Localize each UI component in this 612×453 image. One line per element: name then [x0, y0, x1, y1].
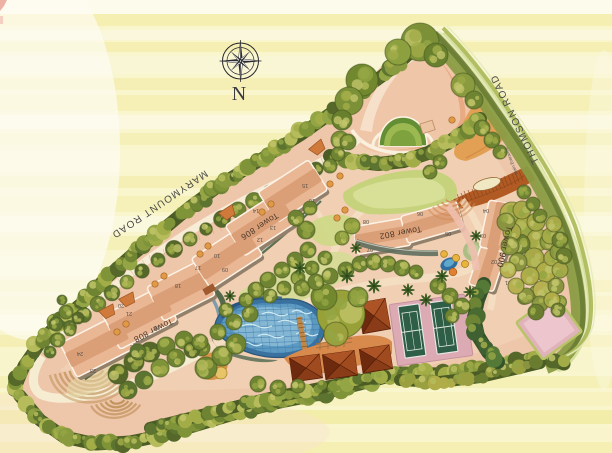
svg-text:06: 06 [417, 210, 423, 216]
svg-text:17: 17 [195, 264, 201, 270]
svg-text:05: 05 [445, 230, 451, 236]
svg-text:12: 12 [257, 236, 263, 242]
svg-text:18: 18 [175, 282, 181, 288]
svg-text:08: 08 [363, 218, 369, 224]
svg-text:19: 19 [154, 324, 160, 330]
svg-text:09: 09 [222, 266, 228, 272]
svg-text:24: 24 [77, 350, 83, 356]
svg-text:N: N [232, 83, 246, 105]
svg-text:23: 23 [90, 367, 96, 373]
svg-text:13: 13 [270, 224, 276, 230]
svg-text:10: 10 [214, 252, 220, 258]
svg-text:21: 21 [126, 310, 132, 316]
svg-text:04: 04 [483, 207, 489, 213]
svg-text:03: 03 [480, 232, 486, 238]
svg-text:15: 15 [302, 182, 308, 188]
svg-text:14: 14 [253, 207, 259, 213]
